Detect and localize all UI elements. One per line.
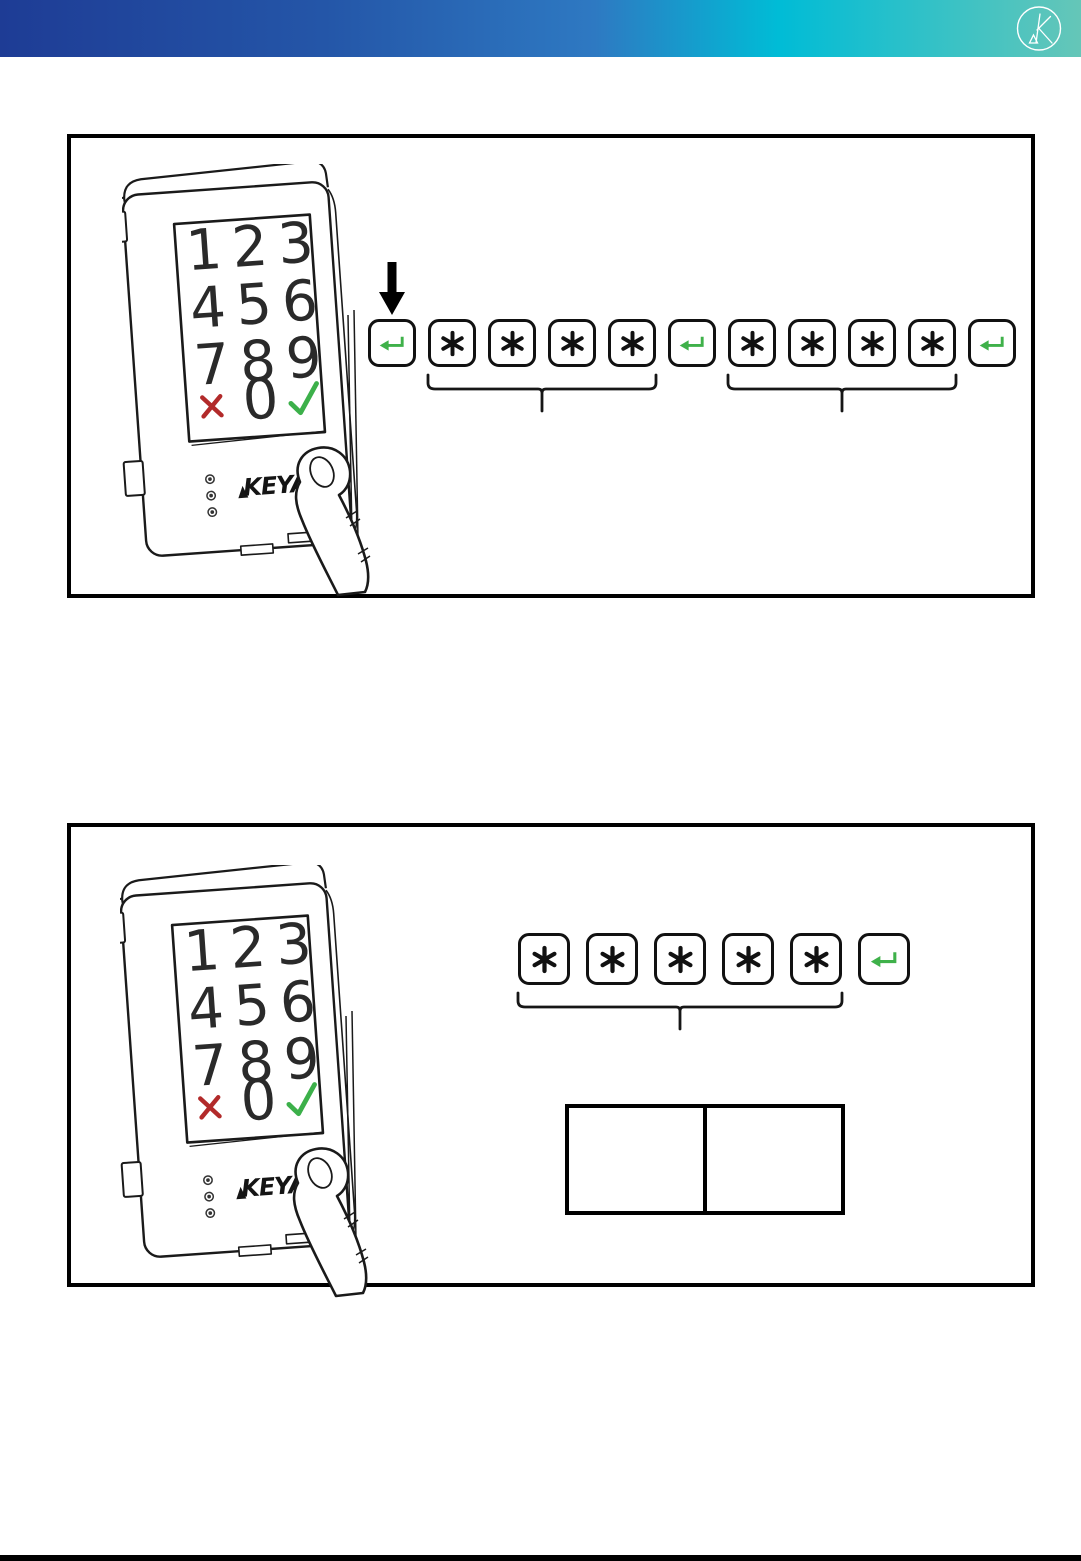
enter-arrow-icon [677,328,708,359]
asterisk-icon [619,330,646,357]
star-key [908,319,956,367]
enter-key [858,933,910,985]
device-bottom-tab [239,1245,272,1256]
asterisk-icon [802,945,831,974]
brand-logo-icon [1016,5,1062,52]
star-key [788,319,836,367]
figure-frame-2: 1234567890 KEYA [67,823,1035,1287]
asterisk-icon [439,330,466,357]
device-side-tab [122,1162,143,1197]
keypad-digit: 2 [230,214,270,281]
star-key [428,319,476,367]
enter-arrow-icon [377,328,408,359]
group-underbrace [728,375,956,411]
device-side-tab [120,912,125,943]
enter-key [668,319,716,367]
asterisk-icon [859,330,886,357]
keypad-digit: 7 [190,1033,230,1100]
group-underbrace [518,993,842,1029]
star-key [654,933,706,985]
keypad-digit: 2 [228,915,268,982]
asterisk-icon [559,330,586,357]
enter-key [968,319,1016,367]
asterisk-icon [666,945,695,974]
header-bar [0,0,1081,57]
device-side-tab [124,461,145,496]
device-side-tab [122,211,127,242]
device-bottom-tab [241,544,274,555]
keypad-digit-zero: 0 [241,366,281,433]
keypad-device-drawing: 1234567890 KEYA [122,164,462,598]
star-key [608,319,656,367]
keypad-device-illustration-2: 1234567890 KEYA [120,865,460,1304]
keypad-digit: 3 [274,911,314,978]
asterisk-icon [734,945,763,974]
figure-frame-1: 1234567890 KEYA [67,134,1035,598]
star-key [518,933,570,985]
star-key [722,933,774,985]
asterisk-icon [919,330,946,357]
star-key [548,319,596,367]
finger-illustration [296,447,370,595]
keypad-device-drawing: 1234567890 KEYA [120,865,460,1299]
enter-key [368,319,416,367]
manual-page: 1234567890 KEYA [0,0,1081,1561]
footer-bar [0,1555,1081,1561]
keypad-digit: 3 [276,210,316,277]
asterisk-icon [530,945,559,974]
table-cell-right [707,1108,841,1211]
group-underbrace [428,375,656,411]
keypad-digit: 1 [182,918,222,985]
keypad-device-illustration-1: 1234567890 KEYA [122,164,462,603]
asterisk-icon [598,945,627,974]
keypad-digit: 1 [184,217,224,284]
code-table [565,1104,845,1215]
keypad-digit-zero: 0 [239,1067,279,1134]
enter-arrow-icon [977,328,1008,359]
asterisk-icon [499,330,526,357]
star-key [848,319,896,367]
asterisk-icon [799,330,826,357]
star-key [728,319,776,367]
asterisk-icon [739,330,766,357]
table-cell-left [569,1108,707,1211]
star-key [586,933,638,985]
enter-arrow-icon [868,943,901,976]
keypad-digit: 7 [192,332,232,399]
star-key [790,933,842,985]
star-key [488,319,536,367]
finger-illustration [294,1148,368,1296]
